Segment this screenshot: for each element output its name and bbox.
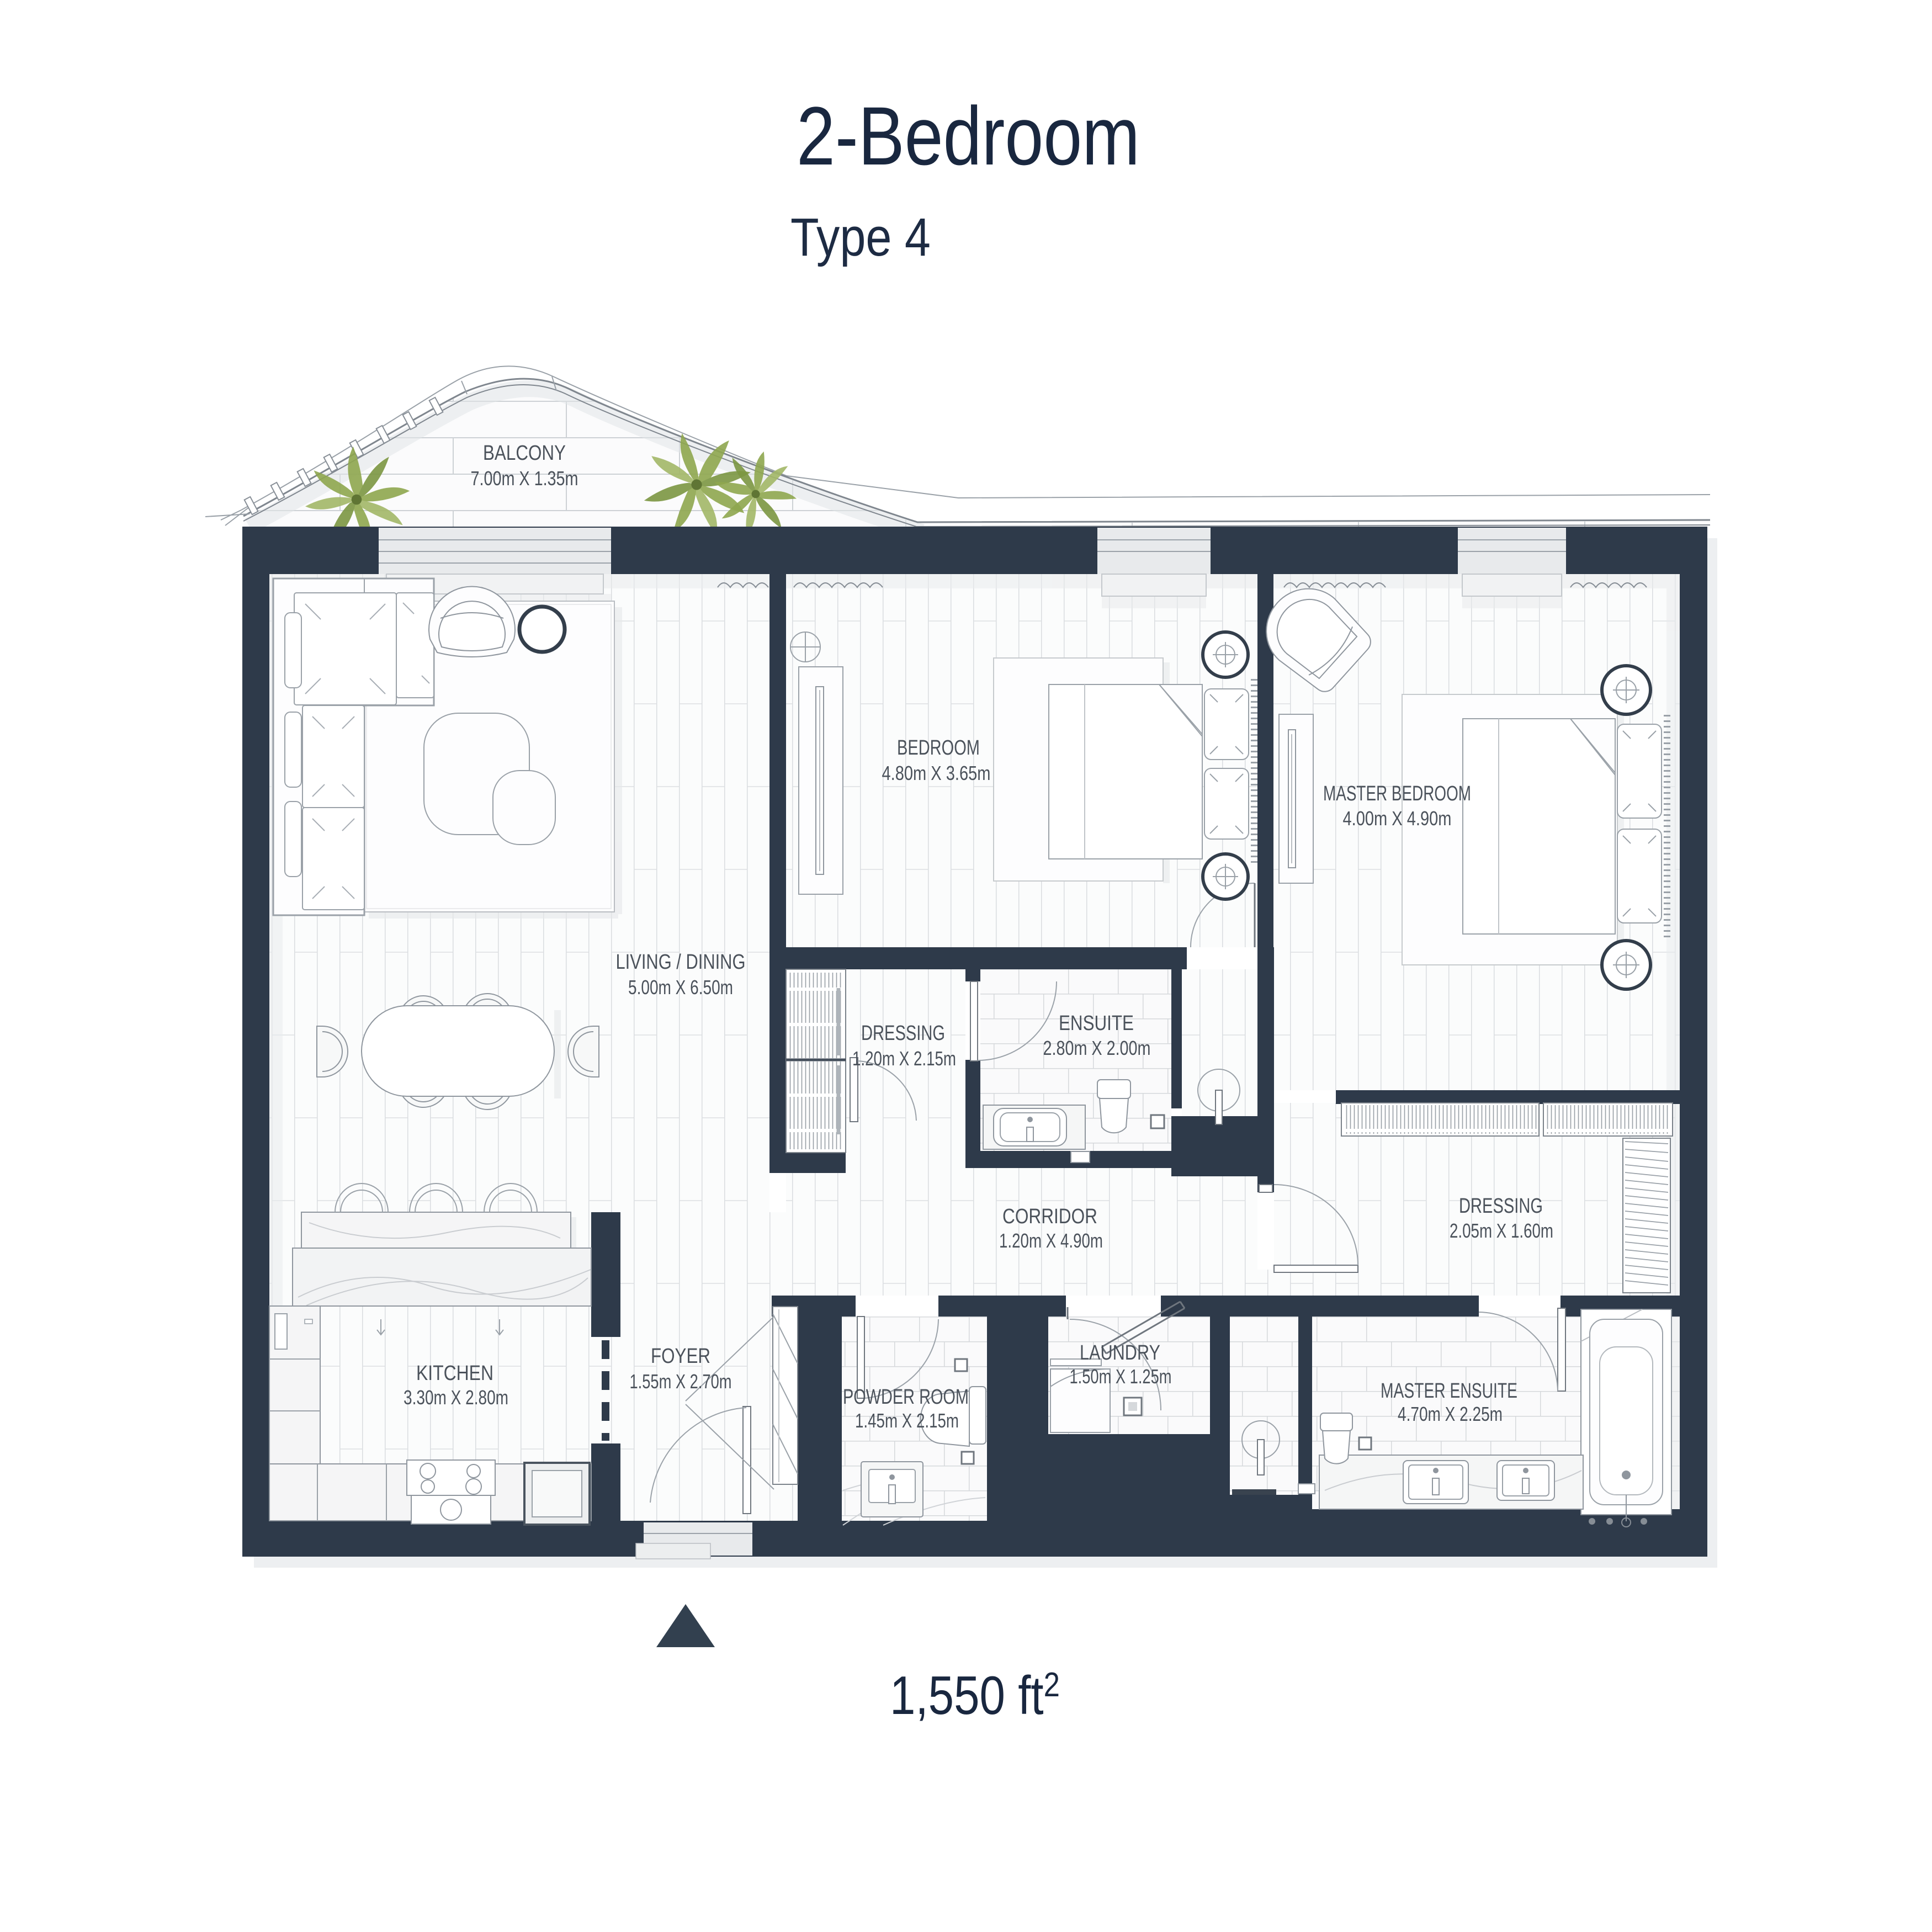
svg-text:BEDROOM: BEDROOM	[897, 736, 980, 760]
svg-text:3.30m X 2.80m: 3.30m X 2.80m	[404, 1386, 508, 1409]
svg-text:2.80m X 2.00m: 2.80m X 2.00m	[1043, 1037, 1151, 1059]
svg-text:4.80m X 3.65m: 4.80m X 3.65m	[882, 762, 991, 784]
svg-text:7.00m X 1.35m: 7.00m X 1.35m	[471, 467, 578, 490]
svg-text:MASTER BEDROOM: MASTER BEDROOM	[1323, 782, 1471, 805]
svg-text:POWDER ROOM: POWDER ROOM	[843, 1386, 969, 1409]
svg-text:BALCONY: BALCONY	[483, 442, 566, 465]
svg-text:5.00m X 6.50m: 5.00m X 6.50m	[628, 976, 733, 999]
svg-text:1.20m X 4.90m: 1.20m X 4.90m	[999, 1229, 1103, 1252]
svg-text:1.20m X 2.15m: 1.20m X 2.15m	[852, 1047, 956, 1070]
svg-text:DRESSING: DRESSING	[1459, 1195, 1543, 1218]
svg-text:KITCHEN: KITCHEN	[416, 1362, 493, 1385]
svg-text:CORRIDOR: CORRIDOR	[1002, 1205, 1097, 1228]
svg-text:2-Bedroom: 2-Bedroom	[797, 89, 1140, 182]
svg-text:4.00m X 4.90m: 4.00m X 4.90m	[1343, 807, 1452, 830]
svg-text:LIVING / DINING: LIVING / DINING	[616, 951, 746, 974]
svg-text:MASTER ENSUITE: MASTER ENSUITE	[1381, 1379, 1517, 1403]
svg-text:1.50m X 1.25m: 1.50m X 1.25m	[1070, 1365, 1172, 1388]
svg-text:DRESSING: DRESSING	[861, 1022, 945, 1045]
svg-text:1,550 ft2: 1,550 ft2	[890, 1665, 1060, 1726]
svg-text:1.55m X 2.70m: 1.55m X 2.70m	[630, 1370, 732, 1393]
svg-text:2.05m X 1.60m: 2.05m X 1.60m	[1450, 1219, 1553, 1242]
svg-text:Type 4: Type 4	[790, 207, 931, 267]
svg-text:1.45m X 2.15m: 1.45m X 2.15m	[855, 1409, 959, 1432]
svg-text:LAUNDRY: LAUNDRY	[1080, 1341, 1160, 1365]
svg-text:ENSUITE: ENSUITE	[1059, 1012, 1134, 1035]
svg-text:4.70m X 2.25m: 4.70m X 2.25m	[1398, 1403, 1503, 1425]
svg-text:FOYER: FOYER	[651, 1345, 710, 1368]
